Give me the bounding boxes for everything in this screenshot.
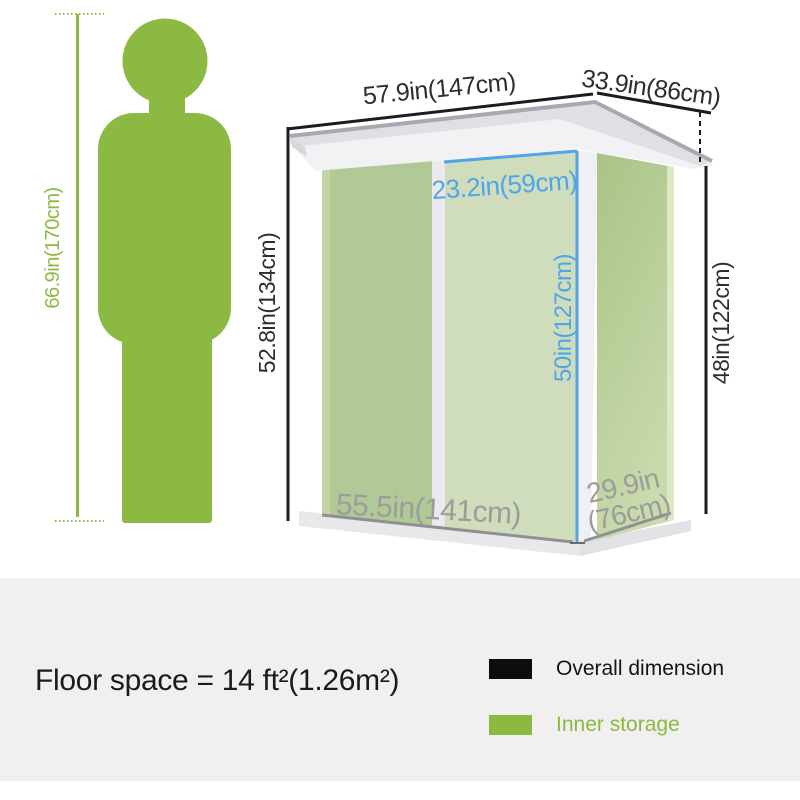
inner-storage-swatch	[489, 715, 532, 735]
front-wall-left-edge	[322, 169, 330, 517]
rear-height-label: 48in(122cm)	[708, 262, 734, 384]
front-wall-trim	[432, 160, 445, 529]
side-wall-edge	[667, 166, 674, 521]
product-dimension-diagram: 66.9in(170cm) 57.9in(147cm) 33.9in(86cm)…	[0, 0, 800, 800]
inner-storage-label: Inner storage	[556, 713, 680, 737]
legend-row-inner: Inner storage	[489, 711, 724, 739]
diagram-canvas: 66.9in(170cm) 57.9in(147cm) 33.9in(86cm)…	[0, 0, 800, 580]
person-head	[123, 19, 208, 104]
door-height-label: 50in(127cm)	[550, 254, 577, 382]
overall-dimension-swatch	[489, 659, 532, 679]
legend-row-overall: Overall dimension	[489, 655, 724, 683]
person-silhouette	[98, 19, 231, 524]
person-legs	[122, 330, 212, 523]
front-wall-left-panel	[322, 161, 432, 527]
person-torso	[98, 113, 231, 344]
person-height-label: 66.9in(170cm)	[42, 187, 64, 308]
legend: Overall dimension Inner storage	[489, 655, 724, 767]
floor-space-label: Floor space = 14 ft²(1.26m²)	[35, 664, 399, 698]
overall-dimension-label: Overall dimension	[556, 657, 724, 681]
front-height-label: 52.8in(134cm)	[254, 233, 280, 374]
